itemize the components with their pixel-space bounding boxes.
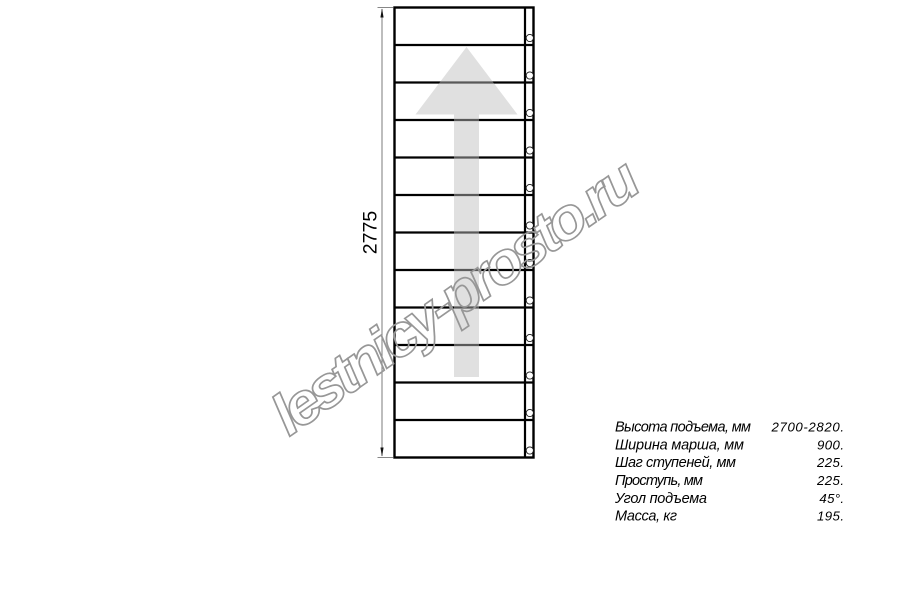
svg-text:Шаг ступеней, мм: Шаг ступеней, мм: [615, 455, 736, 471]
svg-text:2775: 2775: [360, 211, 382, 255]
svg-text:195.: 195.: [817, 509, 844, 524]
svg-text:Угол подъема: Угол подъема: [614, 491, 707, 507]
svg-text:Проступь, мм: Проступь, мм: [615, 473, 703, 489]
svg-text:900.: 900.: [817, 437, 844, 452]
svg-text:2700-2820.: 2700-2820.: [771, 420, 845, 435]
svg-text:225.: 225.: [816, 473, 844, 488]
svg-text:Ширина марша, мм: Ширина марша, мм: [615, 437, 744, 453]
svg-text:Масса, кг: Масса, кг: [615, 509, 677, 525]
svg-text:45°.: 45°.: [819, 491, 844, 506]
svg-text:Высота подъема, мм: Высота подъема, мм: [615, 420, 751, 436]
svg-text:225.: 225.: [816, 455, 844, 470]
